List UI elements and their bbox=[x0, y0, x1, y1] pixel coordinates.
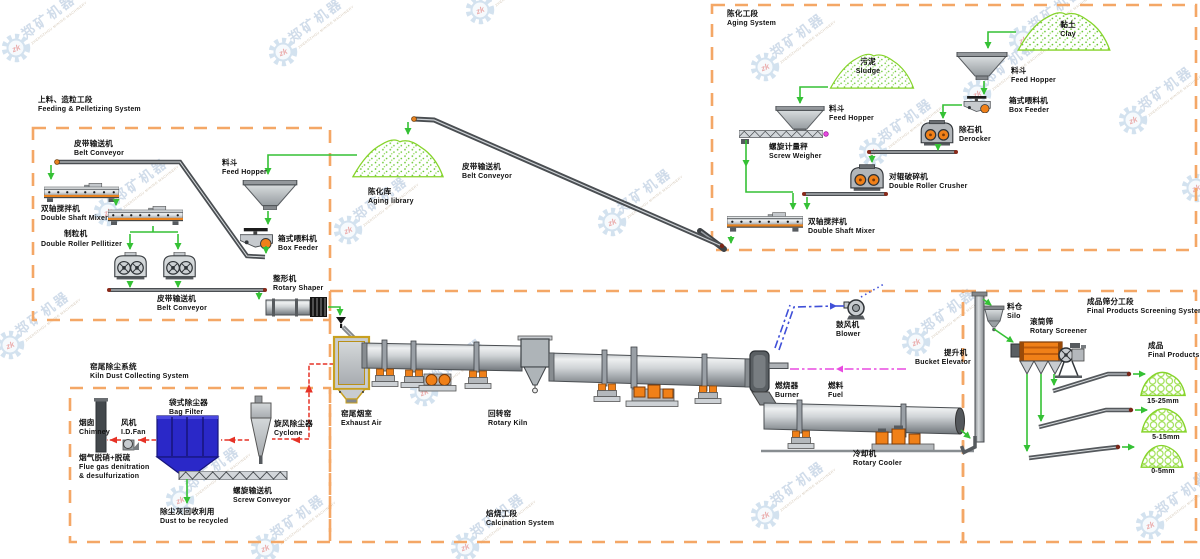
label-box-feeder-feeding: 箱式喂料机Box Feeder bbox=[278, 234, 318, 253]
label-double-shaft-mixer-aging: 双轴搅拌机Double Shaft Mixer bbox=[808, 217, 875, 236]
label-derocker-line: 除石机 bbox=[959, 125, 991, 135]
label-blower: 鼓风机Blower bbox=[836, 320, 861, 339]
label-flue-gas-line: & desulfurization bbox=[79, 472, 150, 482]
label-chimney-line: 烟囱 bbox=[79, 418, 110, 428]
title-aging-line: Aging System bbox=[727, 19, 776, 29]
label-size-5-15: 5-15mm bbox=[1152, 433, 1180, 443]
label-crusher: 对辊破碎机Double Roller Crusher bbox=[889, 172, 968, 191]
label-id-fan-line: I.D.Fan bbox=[121, 428, 146, 438]
label-size-0-5: 0-5mm bbox=[1151, 467, 1175, 477]
title-kiln-dust-line: Kiln Dust Collecting System bbox=[90, 372, 189, 382]
label-aging-library: 陈化库Aging library bbox=[368, 187, 414, 206]
label-feed-hopper-feeding-line: Feed Hopper bbox=[222, 168, 267, 178]
title-feeding-line: Feeding & Pelletizing System bbox=[38, 105, 141, 115]
label-cyclone-line: 旋风除尘器 bbox=[274, 419, 313, 429]
label-burner: 燃烧器Burner bbox=[775, 381, 799, 400]
label-derocker-line: Derocker bbox=[959, 135, 991, 145]
label-screw-conveyor-line: Screw Conveyor bbox=[233, 496, 291, 506]
label-size-5-15-line: 5-15mm bbox=[1152, 433, 1180, 443]
label-dust-recycled-line: 除尘灰回收利用 bbox=[160, 507, 228, 517]
label-final-products-line: Final Products bbox=[1148, 351, 1199, 361]
label-box-feeder-feeding-line: 箱式喂料机 bbox=[278, 234, 318, 244]
label-blower-line: Blower bbox=[836, 330, 861, 340]
label-double-shaft-mixer-feeding-line: 双轴搅拌机 bbox=[41, 204, 108, 214]
label-screw-weigher: 螺旋计量秤Screw Weigher bbox=[769, 142, 822, 161]
label-pellitizer-en: Double Roller Pellitizer bbox=[41, 240, 122, 250]
label-id-fan-line: 风机 bbox=[121, 418, 146, 428]
label-size-15-25: 15-25mm bbox=[1147, 397, 1179, 407]
title-calcination: 焙烧工段Calcination System bbox=[486, 509, 554, 528]
label-dust-recycled-line: Dust to be recycled bbox=[160, 517, 228, 527]
label-sludge: 污泥Sludge bbox=[856, 57, 881, 76]
label-chimney-line: Chimney bbox=[79, 428, 110, 438]
label-rotary-shaper-line: Rotary Shaper bbox=[273, 284, 323, 294]
label-aging-library-line: Aging library bbox=[368, 197, 414, 207]
label-layer: 上料、造粒工段Feeding & Pelletizing System陈化工段A… bbox=[0, 0, 1200, 559]
title-feeding-line: 上料、造粒工段 bbox=[38, 95, 141, 105]
label-silo: 料仓Silo bbox=[1007, 302, 1023, 321]
label-final-products: 成品Final Products bbox=[1148, 341, 1199, 360]
label-screw-weigher-line: Screw Weigher bbox=[769, 152, 822, 162]
label-burner-line: 燃烧器 bbox=[775, 381, 799, 391]
label-double-shaft-mixer-aging-line: 双轴搅拌机 bbox=[808, 217, 875, 227]
label-belt-conveyor-middle: 皮带输送机Belt Conveyor bbox=[462, 162, 512, 181]
label-burner-line: Burner bbox=[775, 391, 799, 401]
label-rotary-cooler-line: Rotary Cooler bbox=[853, 459, 902, 469]
label-silo-line: 料仓 bbox=[1007, 302, 1023, 312]
label-belt-conveyor-feeding-bottom-line: 皮带输送机 bbox=[157, 294, 207, 304]
label-feed-hopper-clay: 料斗Feed Hopper bbox=[1011, 66, 1056, 85]
title-aging-line: 陈化工段 bbox=[727, 9, 776, 19]
label-double-shaft-mixer-feeding-line: Double Shaft Mixer bbox=[41, 214, 108, 224]
label-bag-filter-line: Bag Filter bbox=[169, 408, 208, 418]
label-fuel: 燃料Fuel bbox=[828, 381, 844, 400]
label-cyclone-line: Cyclone bbox=[274, 429, 313, 439]
label-feed-hopper-sludge-line: 料斗 bbox=[829, 104, 874, 114]
label-fuel-line: Fuel bbox=[828, 391, 844, 401]
label-bucket-elevator-zh: 提升机 bbox=[944, 348, 967, 358]
label-rotary-screener: 滚筒筛Rotary Screener bbox=[1030, 317, 1087, 336]
label-rotary-shaper-line: 整形机 bbox=[273, 274, 323, 284]
label-feed-hopper-clay-line: 料斗 bbox=[1011, 66, 1056, 76]
label-sludge-line: Sludge bbox=[856, 67, 881, 77]
label-pellitizer-en-line: Double Roller Pellitizer bbox=[41, 240, 122, 250]
label-bag-filter-line: 袋式除尘器 bbox=[169, 398, 208, 408]
label-feed-hopper-clay-line: Feed Hopper bbox=[1011, 76, 1056, 86]
label-screw-weigher-line: 螺旋计量秤 bbox=[769, 142, 822, 152]
label-belt-conveyor-middle-line: Belt Conveyor bbox=[462, 172, 512, 182]
label-size-0-5-line: 0-5mm bbox=[1151, 467, 1175, 477]
label-bucket-elevator-en-line: Bucket Elevator bbox=[915, 358, 971, 368]
label-double-shaft-mixer-aging-line: Double Shaft Mixer bbox=[808, 227, 875, 237]
label-clay-line: Clay bbox=[1060, 30, 1076, 40]
label-bucket-elevator-en: Bucket Elevator bbox=[915, 358, 971, 368]
title-aging: 陈化工段Aging System bbox=[727, 9, 776, 28]
title-feeding: 上料、造粒工段Feeding & Pelletizing System bbox=[38, 95, 141, 114]
label-double-shaft-mixer-feeding: 双轴搅拌机Double Shaft Mixer bbox=[41, 204, 108, 223]
label-crusher-line: Double Roller Crusher bbox=[889, 182, 968, 192]
label-clay-line: 黏土 bbox=[1060, 20, 1076, 30]
label-belt-conveyor-feeding-bottom: 皮带输送机Belt Conveyor bbox=[157, 294, 207, 313]
label-bag-filter: 袋式除尘器Bag Filter bbox=[169, 398, 208, 417]
title-calcination-line: 焙烧工段 bbox=[486, 509, 554, 519]
label-chimney: 烟囱Chimney bbox=[79, 418, 110, 437]
label-flue-gas-line: Flue gas denitration bbox=[79, 463, 150, 473]
label-flue-gas-line: 烟气脱硝+脱硫 bbox=[79, 453, 150, 463]
label-rotary-kiln: 回转窑Rotary Kiln bbox=[488, 409, 528, 428]
title-screening-line: Final Products Screening System bbox=[1087, 307, 1200, 317]
label-box-feeder-clay: 箱式喂料机Box Feeder bbox=[1009, 96, 1049, 115]
label-fuel-line: 燃料 bbox=[828, 381, 844, 391]
label-id-fan: 风机I.D.Fan bbox=[121, 418, 146, 437]
label-pellitizer-zh-line: 制粒机 bbox=[64, 229, 87, 239]
label-dust-recycled: 除尘灰回收利用Dust to be recycled bbox=[160, 507, 228, 526]
label-derocker: 除石机Derocker bbox=[959, 125, 991, 144]
label-rotary-screener-line: 滚筒筛 bbox=[1030, 317, 1087, 327]
label-belt-conveyor-feeding-top-line: 皮带输送机 bbox=[74, 139, 124, 149]
label-rotary-cooler-line: 冷却机 bbox=[853, 449, 902, 459]
label-exhaust-air-line: Exhaust Air bbox=[341, 419, 382, 429]
label-pellitizer-zh: 制粒机 bbox=[64, 229, 87, 239]
title-screening: 成品筛分工段Final Products Screening System bbox=[1087, 297, 1200, 316]
label-box-feeder-clay-line: Box Feeder bbox=[1009, 106, 1049, 116]
label-feed-hopper-feeding: 料斗Feed Hopper bbox=[222, 158, 267, 177]
label-aging-library-line: 陈化库 bbox=[368, 187, 414, 197]
title-screening-line: 成品筛分工段 bbox=[1087, 297, 1200, 307]
label-box-feeder-feeding-line: Box Feeder bbox=[278, 244, 318, 254]
label-rotary-cooler: 冷却机Rotary Cooler bbox=[853, 449, 902, 468]
label-feed-hopper-feeding-line: 料斗 bbox=[222, 158, 267, 168]
label-exhaust-air-line: 窑尾烟室 bbox=[341, 409, 382, 419]
label-blower-line: 鼓风机 bbox=[836, 320, 861, 330]
label-rotary-kiln-line: 回转窑 bbox=[488, 409, 528, 419]
title-kiln-dust: 窑尾除尘系统Kiln Dust Collecting System bbox=[90, 362, 189, 381]
label-belt-conveyor-feeding-bottom-line: Belt Conveyor bbox=[157, 304, 207, 314]
label-feed-hopper-sludge-line: Feed Hopper bbox=[829, 114, 874, 124]
label-belt-conveyor-middle-line: 皮带输送机 bbox=[462, 162, 512, 172]
label-flue-gas: 烟气脱硝+脱硫Flue gas denitration& desulfuriza… bbox=[79, 453, 150, 482]
label-clay: 黏土Clay bbox=[1060, 20, 1076, 39]
process-flow-diagram: zk 郑矿机器 ZHENGZHOU MINING MACHINERY bbox=[0, 0, 1200, 559]
label-exhaust-air: 窑尾烟室Exhaust Air bbox=[341, 409, 382, 428]
label-bucket-elevator-zh-line: 提升机 bbox=[944, 348, 967, 358]
label-screw-conveyor-line: 螺旋输送机 bbox=[233, 486, 291, 496]
label-screw-conveyor: 螺旋输送机Screw Conveyor bbox=[233, 486, 291, 505]
label-crusher-line: 对辊破碎机 bbox=[889, 172, 968, 182]
label-belt-conveyor-feeding-top: 皮带输送机Belt Conveyor bbox=[74, 139, 124, 158]
label-sludge-line: 污泥 bbox=[856, 57, 881, 67]
label-silo-line: Silo bbox=[1007, 312, 1023, 322]
label-feed-hopper-sludge: 料斗Feed Hopper bbox=[829, 104, 874, 123]
title-kiln-dust-line: 窑尾除尘系统 bbox=[90, 362, 189, 372]
label-cyclone: 旋风除尘器Cyclone bbox=[274, 419, 313, 438]
label-belt-conveyor-feeding-top-line: Belt Conveyor bbox=[74, 149, 124, 159]
title-calcination-line: Calcination System bbox=[486, 519, 554, 529]
label-rotary-kiln-line: Rotary Kiln bbox=[488, 419, 528, 429]
label-rotary-shaper: 整形机Rotary Shaper bbox=[273, 274, 323, 293]
label-size-15-25-line: 15-25mm bbox=[1147, 397, 1179, 407]
label-final-products-line: 成品 bbox=[1148, 341, 1199, 351]
label-box-feeder-clay-line: 箱式喂料机 bbox=[1009, 96, 1049, 106]
label-rotary-screener-line: Rotary Screener bbox=[1030, 327, 1087, 337]
